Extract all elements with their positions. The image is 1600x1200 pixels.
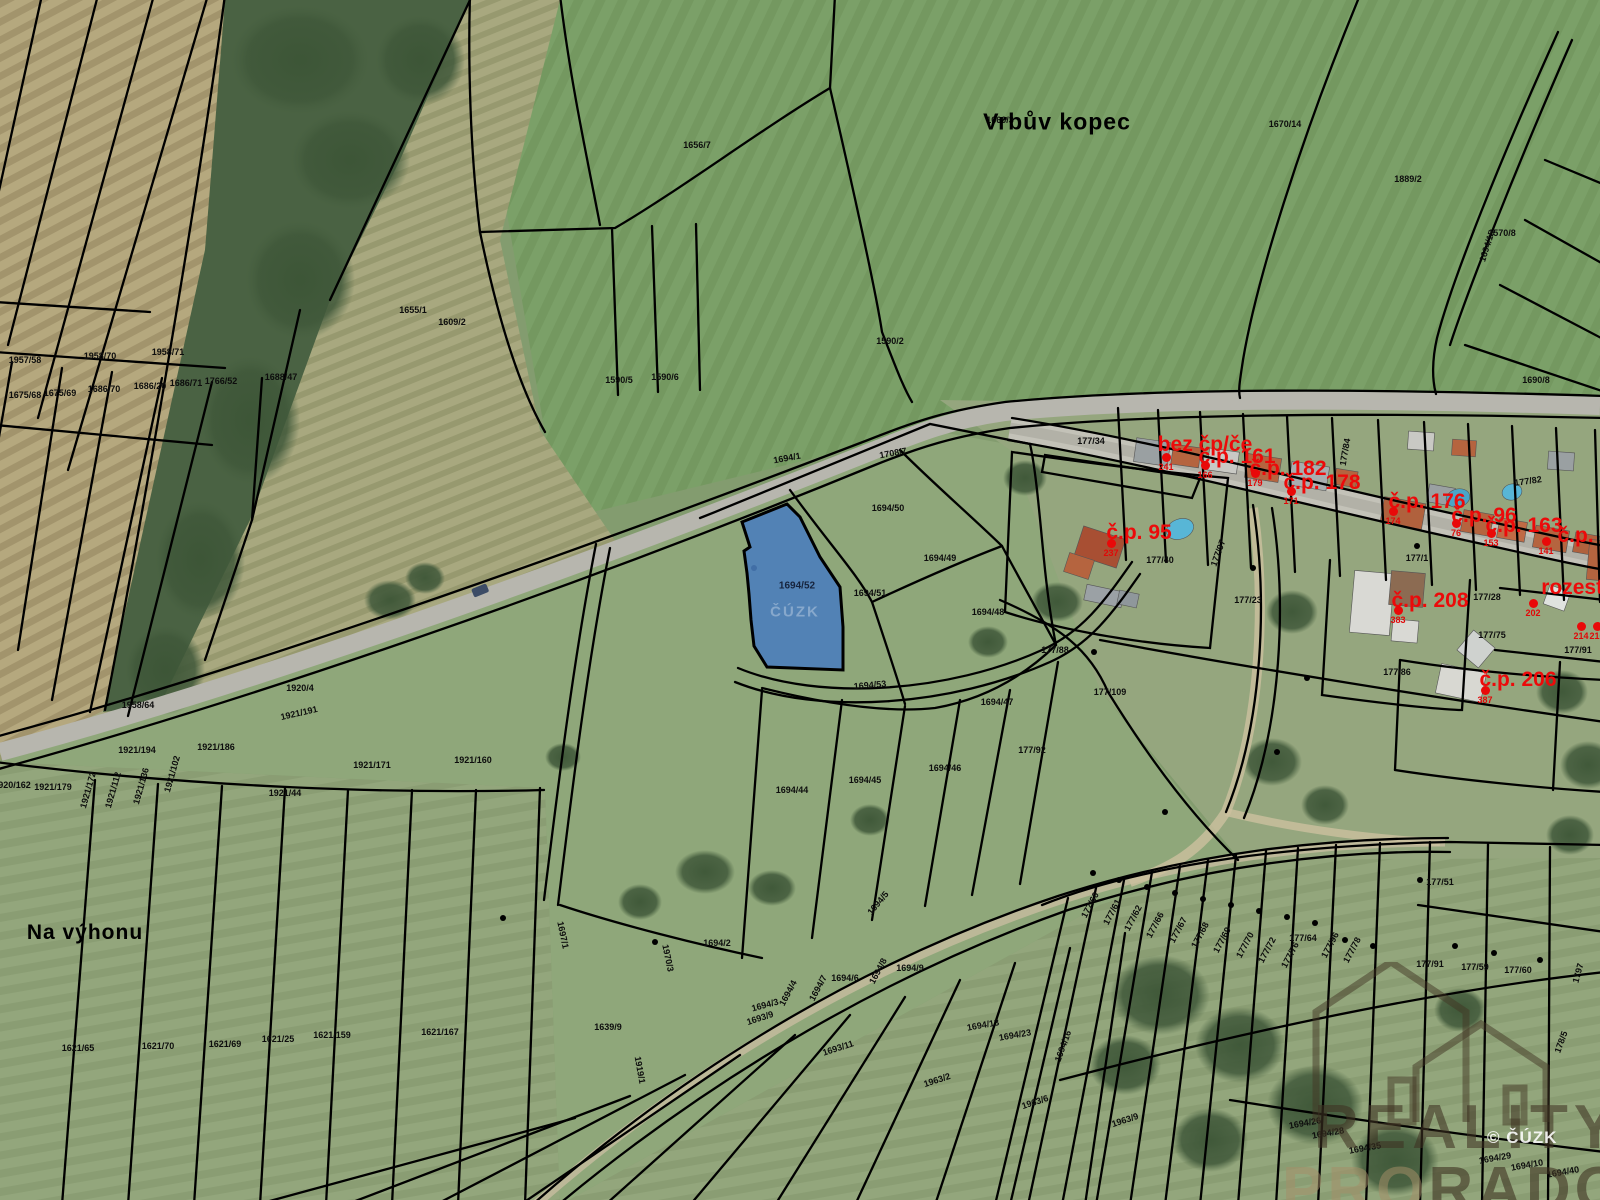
parcel-number-label: 1694/7: [807, 973, 829, 1002]
parcel-number-label: 1694/53: [853, 679, 886, 692]
parcel-number-label: 1694/13: [966, 1017, 1000, 1032]
parcel-number-label: 1639/9: [594, 1022, 622, 1032]
parcel-number-label: 1675/68: [9, 390, 42, 400]
cadastral-map-canvas[interactable]: 1656/71655/11609/21590/51590/61590/21660…: [0, 0, 1600, 1200]
parcel-number-label: 1694/8: [867, 956, 889, 985]
parcel-number-label: 1694/26: [1288, 1115, 1322, 1130]
parcel-number-label: 177/1: [1406, 553, 1429, 563]
parcel-number-label: 1694/35: [1348, 1140, 1382, 1155]
house-number-label: rozestav.: [1541, 576, 1600, 600]
parcel-number-label: 177/96: [1319, 930, 1341, 959]
parcel-number-label: 1590/6: [651, 372, 679, 382]
parcel-number-label: 1694/5: [865, 889, 890, 917]
parcel-number-label: 1694/51: [854, 588, 887, 598]
house-number-label: č.p. 163: [1485, 514, 1562, 538]
parcel-number-label: 1621/159: [313, 1030, 351, 1040]
parcel-number-label: 177/61: [1101, 897, 1123, 926]
parcel-number-label: 1686/70: [88, 384, 121, 394]
parcel-number-label: 1958/64: [122, 700, 155, 710]
place-name-label: Vrbův kopec: [983, 109, 1131, 136]
parcel-number-label: 177/109: [1094, 687, 1127, 697]
parcel-number-label: 177/88: [1041, 645, 1069, 655]
parcel-number-label: 1958/70: [84, 351, 117, 361]
parcel-number-label: 177/70: [1234, 930, 1256, 959]
parcel-number-label: 1686/71: [170, 378, 203, 388]
parcel-number-label: 1590/5: [605, 375, 633, 385]
parcel-number-label: 177/91: [1416, 959, 1444, 969]
parcel-number-label: 1921/102: [162, 755, 182, 794]
parcel-number-label: 1670/14: [1269, 119, 1302, 129]
parcel-number-label: 1921/179: [34, 782, 72, 792]
parcel-number-label: 1970/3: [660, 943, 676, 972]
parcel-number-label: 1797: [1571, 962, 1586, 984]
parcel-number-label: 177/78: [1341, 935, 1363, 964]
parcel-number-label: 1919/1: [633, 1056, 648, 1085]
parcel-number-label: 177/69: [1211, 925, 1233, 954]
parcel-number-label: 178/5: [1552, 1030, 1569, 1055]
building-point-marker: [1201, 461, 1210, 470]
parcel-number-label: 1708/7: [879, 446, 908, 461]
parcel-number-label: 1590/2: [876, 336, 904, 346]
labels-layer: 1656/71655/11609/21590/51590/61590/21660…: [0, 0, 1600, 1200]
parcel-number-label: 1621/25: [262, 1034, 295, 1044]
parcel-number-label: 177/72: [1256, 935, 1278, 964]
house-number-label: č.p. 162: [1557, 524, 1600, 548]
parcel-number-label: 1621/69: [209, 1039, 242, 1049]
house-number-label: č.p. 95: [1106, 521, 1171, 545]
parcel-number-label: 1921/171: [353, 760, 391, 770]
parcel-number-label: 177/82: [1514, 474, 1543, 488]
parcel-number-label: 1963/9: [1110, 1111, 1139, 1129]
building-point-number: 76: [1451, 528, 1461, 538]
highlighted-parcel-number: 1694/52: [779, 581, 815, 592]
building-point-number: 141: [1538, 546, 1553, 556]
parcel-number-label: 177/51: [1426, 877, 1454, 887]
parcel-number-label: 1694/1: [773, 451, 802, 466]
parcel-number-label: 1958/71: [152, 347, 185, 357]
cuzk-ghost-watermark: ČÚZK: [770, 604, 820, 621]
cuzk-copyright: © ČÚZK: [1487, 1128, 1557, 1148]
parcel-number-label: 1921/172: [78, 771, 98, 810]
parcel-number-label: 1693/9: [745, 1009, 774, 1027]
parcel-number-label: 177/67: [1167, 915, 1189, 944]
parcel-number-label: 177/68: [1189, 920, 1211, 949]
building-point-marker: [1593, 622, 1600, 631]
parcel-number-label: 1694/2: [703, 938, 731, 948]
building-point-number: 202: [1525, 608, 1540, 618]
building-point-marker: [1251, 469, 1260, 478]
building-point-number: 216: [1589, 631, 1600, 641]
parcel-number-label: 1921/136: [131, 767, 151, 806]
parcel-number-label: 1570/8: [1488, 228, 1516, 238]
parcel-number-label: 1766/52: [205, 376, 238, 386]
parcel-number-label: 1694/9: [896, 963, 924, 973]
parcel-number-label: 1694/46: [929, 763, 962, 773]
parcel-number-label: 1694/10: [1510, 1157, 1544, 1172]
building-point-number: 214: [1573, 631, 1588, 641]
parcel-number-label: 1690/8: [1522, 375, 1550, 385]
building-point-number: 153: [1483, 538, 1498, 548]
parcel-number-label: 177/64: [1289, 933, 1317, 943]
place-name-label: Na výhonu: [27, 921, 143, 945]
parcel-number-label: 177/75: [1478, 630, 1506, 640]
parcel-number-label: 1694/6: [831, 973, 859, 983]
parcel-number-label: 177/23: [1234, 595, 1262, 605]
parcel-number-label: 1694/44: [776, 785, 809, 795]
building-point-marker: [1481, 686, 1490, 695]
parcel-number-label: 1920/162: [0, 780, 31, 790]
building-point-marker: [1162, 453, 1171, 462]
parcel-number-label: 1921/112: [103, 771, 123, 809]
parcel-number-label: 177/40: [1146, 555, 1174, 565]
building-point-number: 237: [1103, 548, 1118, 558]
parcel-number-label: 1609/2: [438, 317, 466, 327]
house-number-label: č.p. 206: [1479, 668, 1556, 692]
parcel-number-label: 177/86: [1383, 667, 1411, 677]
parcel-number-label: 1694/4: [777, 978, 799, 1007]
parcel-number-label: 1921/186: [197, 742, 235, 752]
building-point-number: 241: [1158, 462, 1173, 472]
building-point-number: 166: [1197, 470, 1212, 480]
parcel-number-label: 1889/2: [1394, 174, 1422, 184]
parcel-number-label: 1963/6: [1020, 1093, 1049, 1111]
building-point-number: 171: [1283, 496, 1298, 506]
parcel-number-label: 177/84: [1338, 438, 1353, 467]
building-point-marker: [1287, 487, 1296, 496]
parcel-number-label: 1686/20: [134, 381, 167, 391]
parcel-number-label: 1921/194: [118, 745, 156, 755]
parcel-number-label: 177/34: [1077, 436, 1105, 446]
parcel-number-label: 1675/69: [44, 388, 77, 398]
parcel-number-label: 1656/7: [683, 140, 711, 150]
parcel-number-label: 1694/50: [872, 503, 905, 513]
parcel-number-label: 1688/47: [265, 372, 298, 382]
building-point-number: 387: [1477, 695, 1492, 705]
parcel-number-label: 1957/58: [9, 355, 42, 365]
parcel-number-label: 1694/40: [1546, 1164, 1580, 1179]
parcel-number-label: 177/91: [1564, 645, 1592, 655]
building-point-marker: [1529, 599, 1538, 608]
parcel-number-label: 1621/167: [421, 1027, 459, 1037]
parcel-number-label: 177/60: [1504, 965, 1532, 975]
parcel-number-label: 1694/47: [981, 697, 1014, 707]
parcel-number-label: 177/62: [1122, 903, 1144, 932]
building-point-marker: [1394, 606, 1403, 615]
parcel-number-label: 1920/4: [286, 683, 314, 693]
parcel-number-label: 1694/45: [849, 775, 882, 785]
parcel-number-label: 1694/28: [1311, 1125, 1345, 1140]
parcel-number-label: 177/60: [1079, 890, 1101, 919]
parcel-number-label: 177/97: [1209, 538, 1228, 567]
building-point-number: 179: [1247, 478, 1262, 488]
parcel-number-label: 1694/49: [924, 553, 957, 563]
parcel-number-label: 1921/160: [454, 755, 492, 765]
parcel-number-label: 1921/44: [269, 788, 302, 798]
building-point-marker: [1577, 622, 1586, 631]
parcel-number-label: 1694/16: [1053, 1029, 1074, 1063]
parcel-number-label: 1694/48: [972, 607, 1005, 617]
building-point-marker: [1452, 519, 1461, 528]
parcel-number-label: 1621/70: [142, 1041, 175, 1051]
parcel-number-label: 177/76: [1279, 940, 1301, 969]
building-point-number: 383: [1390, 615, 1405, 625]
parcel-number-label: 177/92: [1018, 745, 1046, 755]
parcel-number-label: 1621/65: [62, 1043, 95, 1053]
parcel-number-label: 1693/11: [821, 1038, 855, 1057]
parcel-number-label: 177/28: [1473, 592, 1501, 602]
parcel-number-label: 1694/29: [1478, 1150, 1512, 1165]
building-point-number: 174: [1385, 516, 1400, 526]
building-point-marker: [1542, 537, 1551, 546]
parcel-number-label: 1655/1: [399, 305, 427, 315]
house-number-label: č.p. 208: [1391, 589, 1468, 613]
parcel-number-label: 1694/23: [998, 1027, 1032, 1042]
parcel-number-label: 1697/1: [555, 920, 571, 949]
parcel-number-label: 1921/191: [280, 704, 319, 722]
parcel-number-label: 177/66: [1144, 910, 1166, 939]
parcel-number-label: 1963/2: [922, 1071, 951, 1089]
building-point-marker: [1389, 507, 1398, 516]
building-point-marker: [1487, 529, 1496, 538]
parcel-number-label: 177/59: [1461, 962, 1489, 972]
building-point-marker: [1107, 539, 1116, 548]
